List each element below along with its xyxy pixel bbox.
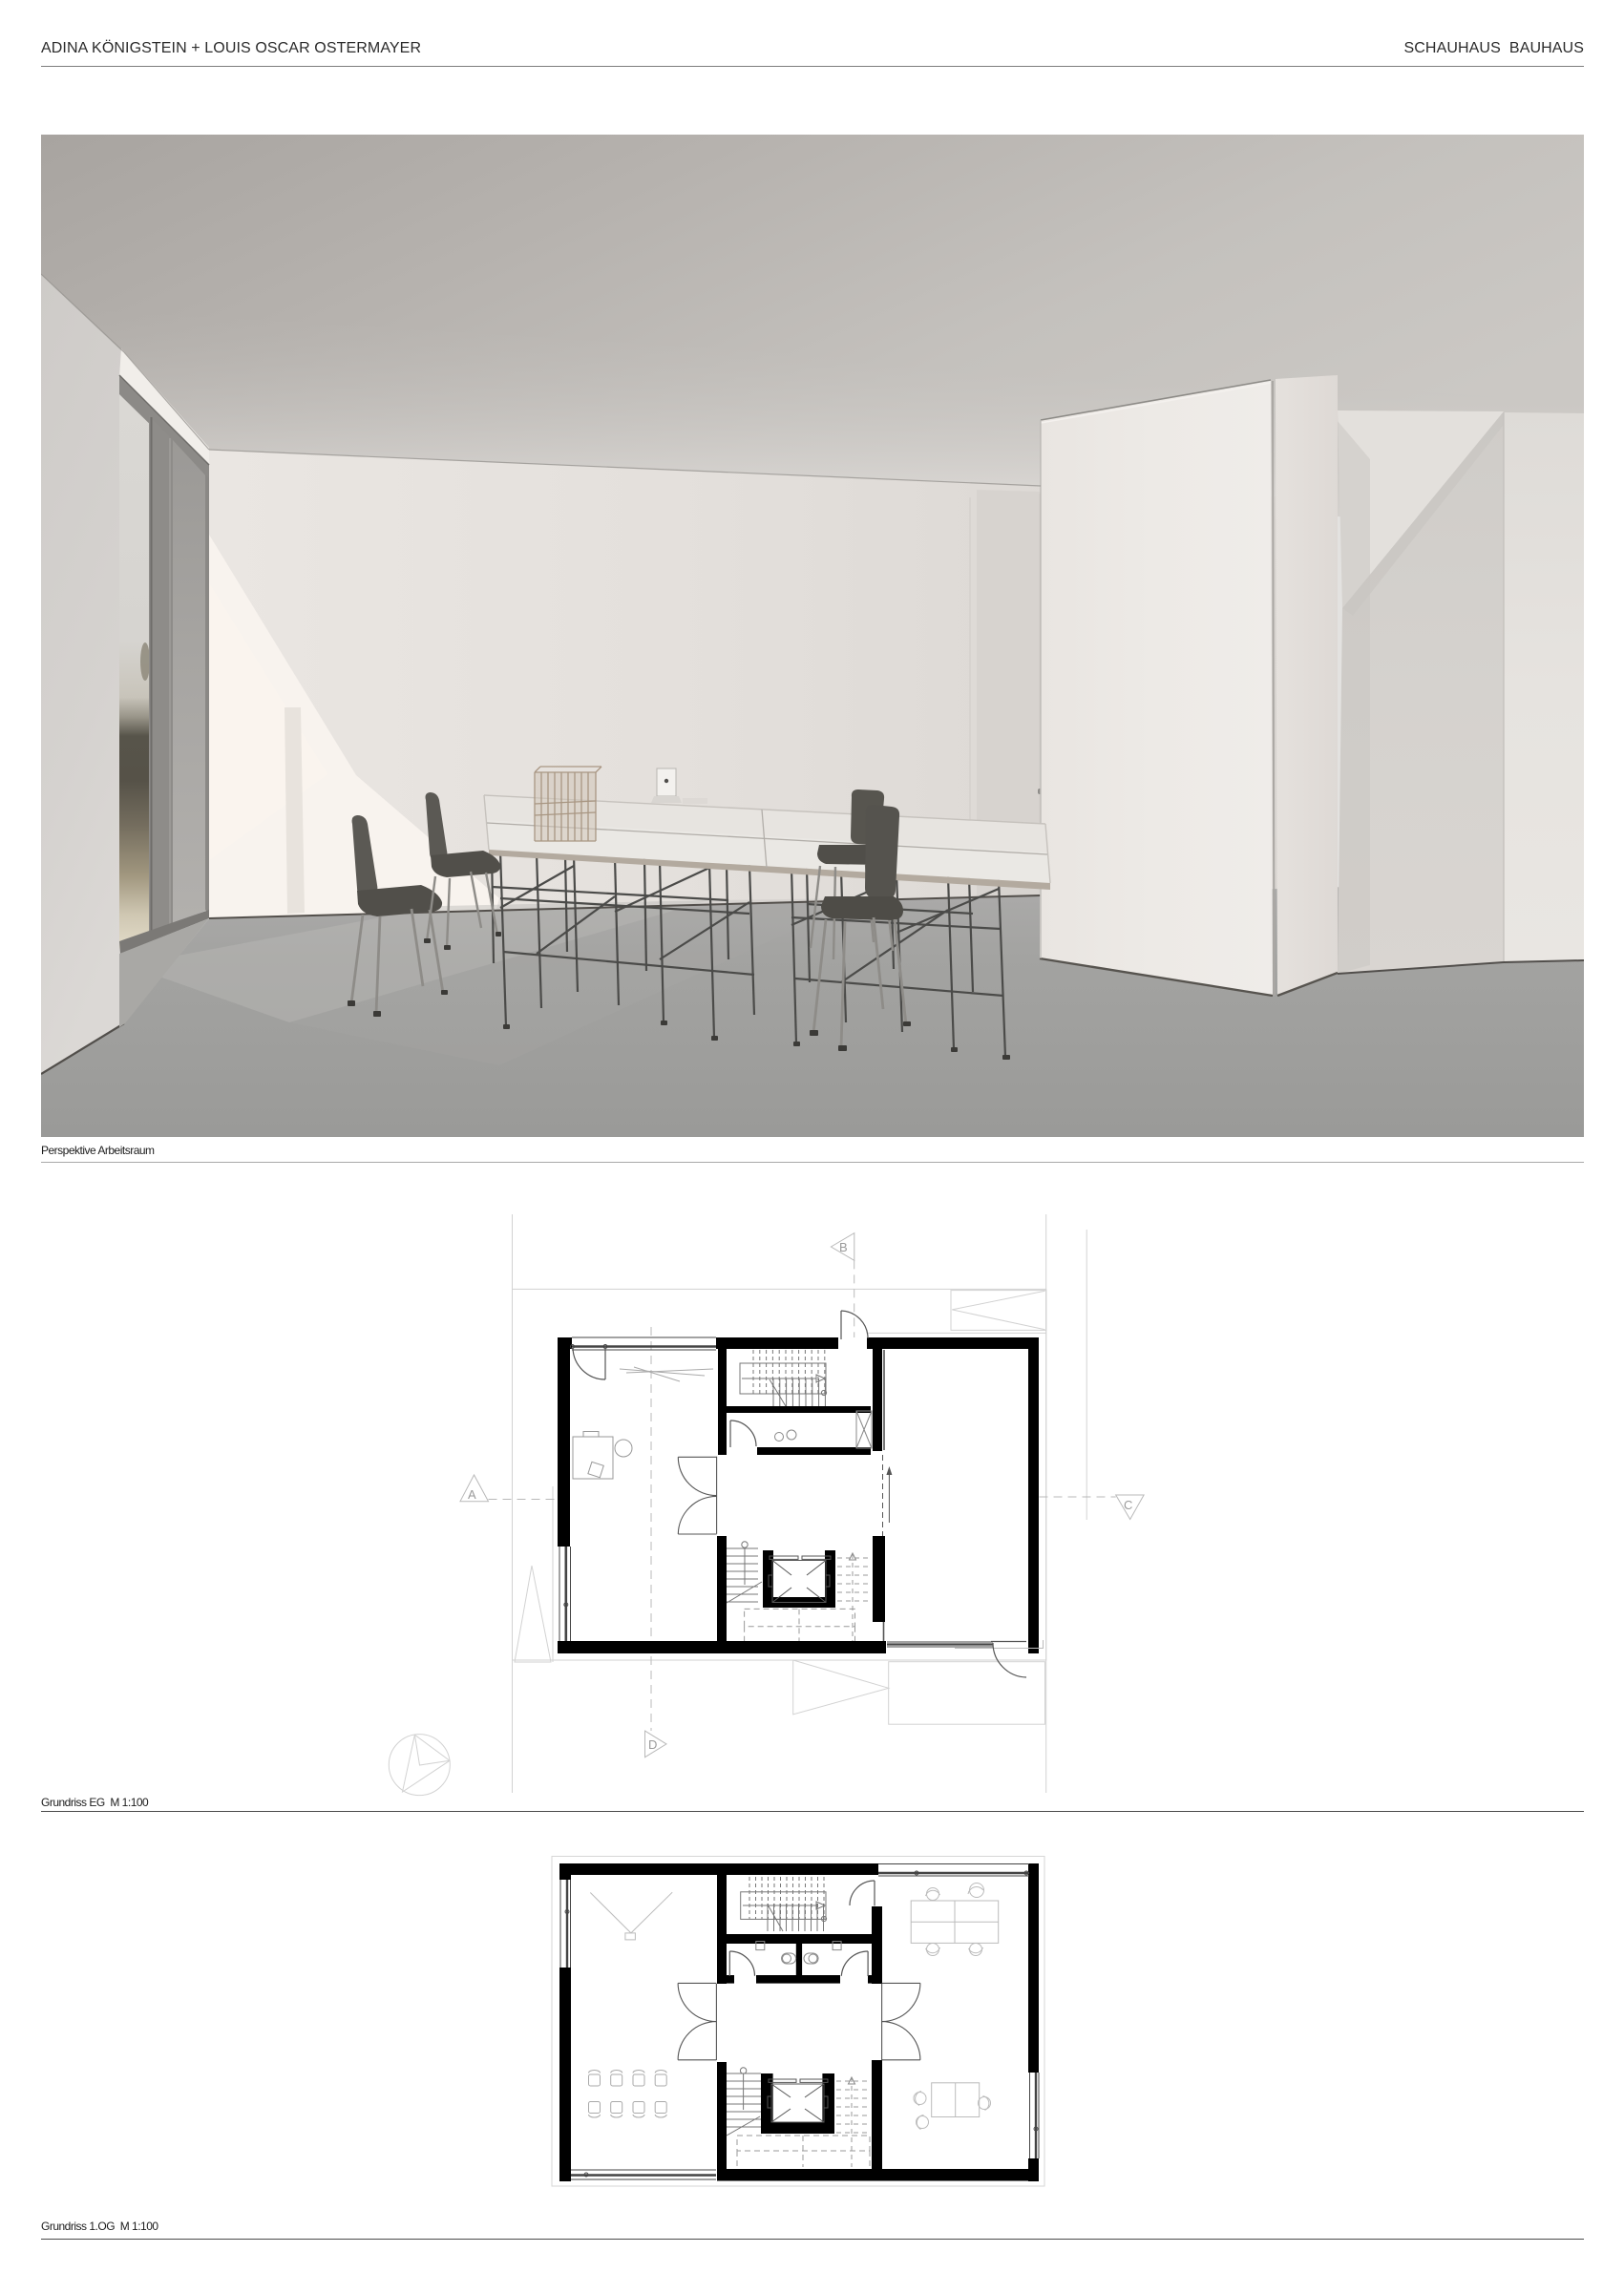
- svg-text:D: D: [648, 1737, 657, 1752]
- svg-text:C: C: [1124, 1498, 1132, 1512]
- svg-text:A: A: [468, 1487, 476, 1502]
- svg-text:B: B: [839, 1240, 848, 1254]
